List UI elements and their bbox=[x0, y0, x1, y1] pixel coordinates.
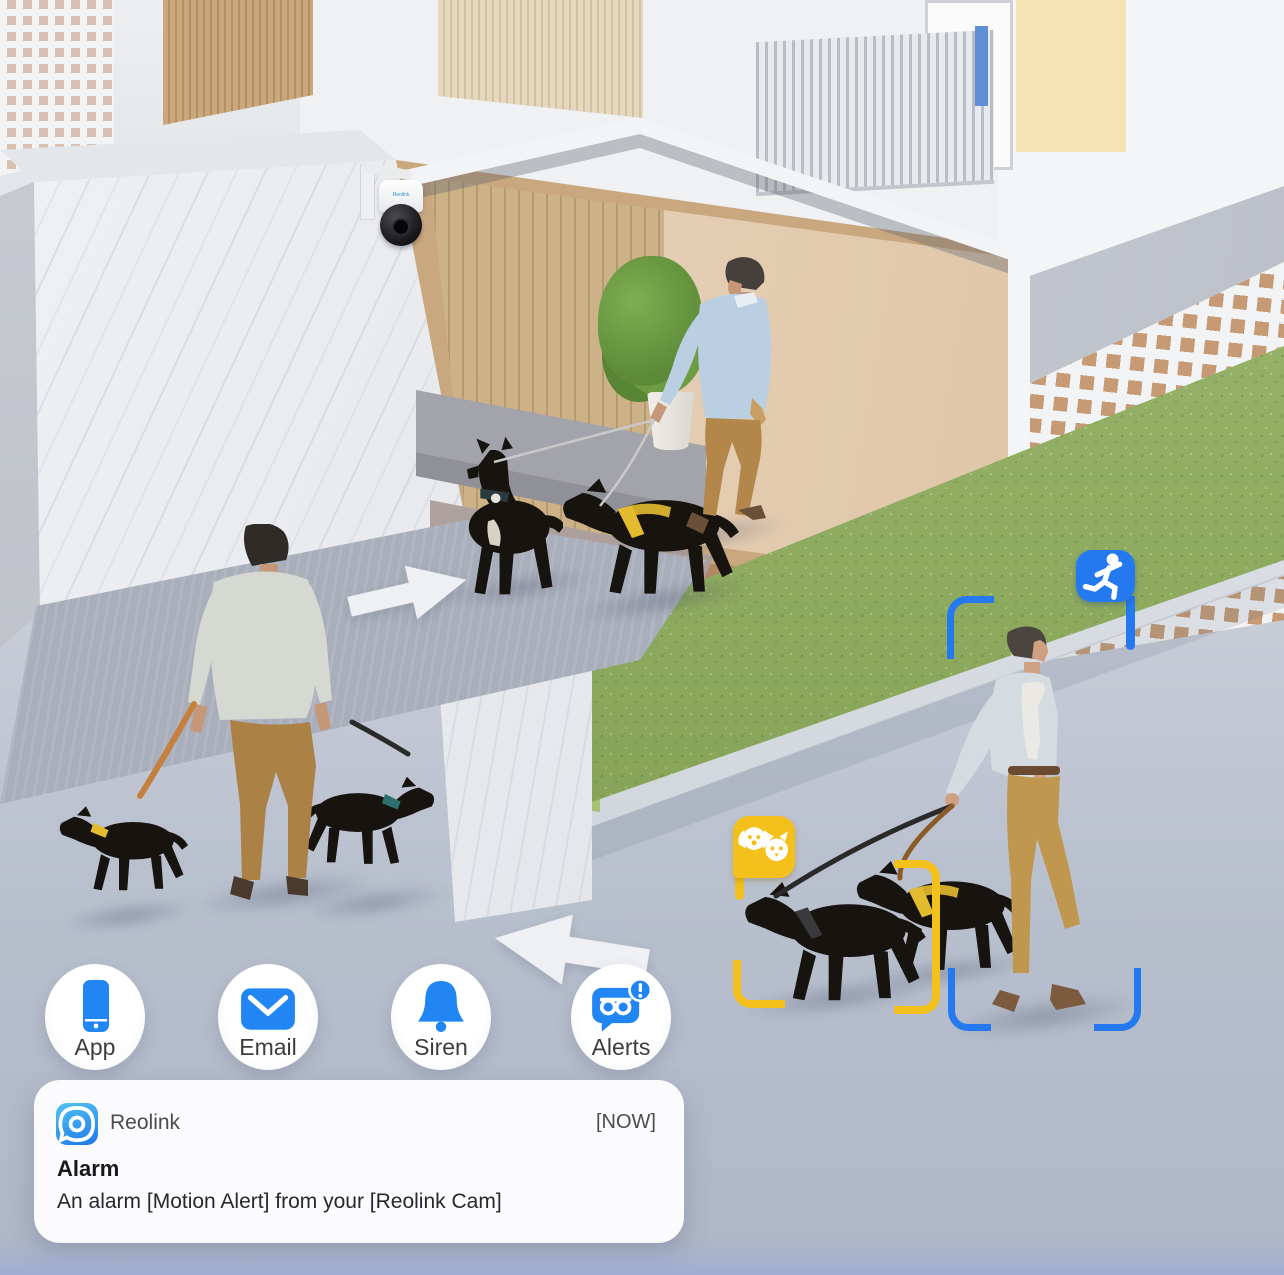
envelope-icon bbox=[218, 984, 318, 1032]
pet-detection-badge bbox=[733, 816, 795, 878]
pet-detection-icon bbox=[733, 816, 795, 878]
scene: Reolink bbox=[0, 0, 1284, 1275]
person-box-corner-tl bbox=[947, 596, 994, 659]
person-badge-stem bbox=[1126, 596, 1135, 650]
push-alert-icon bbox=[571, 978, 671, 1034]
notification-card[interactable]: Reolink [NOW] Alarm An alarm [Motion Ale… bbox=[34, 1080, 684, 1243]
running-person-icon bbox=[1076, 550, 1135, 602]
bell-icon bbox=[391, 978, 491, 1034]
person-box-corner-bl bbox=[948, 968, 991, 1031]
notification-title: Alarm bbox=[57, 1156, 119, 1182]
smartphone-icon bbox=[45, 978, 145, 1036]
channel-alerts-button[interactable]: Alerts bbox=[571, 964, 671, 1070]
reolink-logo bbox=[56, 1103, 98, 1145]
person-detection-badge bbox=[1076, 550, 1135, 602]
notification-app-name: Reolink bbox=[110, 1111, 180, 1135]
channel-label: App bbox=[45, 1034, 145, 1061]
person-box-corner-br bbox=[1094, 968, 1141, 1031]
channel-label: Siren bbox=[391, 1034, 491, 1061]
notification-body: An alarm [Motion Alert] from your [Reoli… bbox=[57, 1190, 502, 1214]
channel-siren-button[interactable]: Siren bbox=[391, 964, 491, 1070]
pet-box-corner-bl bbox=[733, 960, 785, 1008]
bottom-tint bbox=[0, 1240, 1284, 1275]
channel-label: Alerts bbox=[571, 1034, 671, 1061]
channel-app-button[interactable]: App bbox=[45, 964, 145, 1070]
pet-box-right-bracket bbox=[894, 860, 940, 1014]
chat-bubble-icon bbox=[56, 1103, 98, 1145]
channel-label: Email bbox=[218, 1034, 318, 1061]
notification-timestamp: [NOW] bbox=[596, 1111, 656, 1134]
channel-email-button[interactable]: Email bbox=[218, 964, 318, 1070]
